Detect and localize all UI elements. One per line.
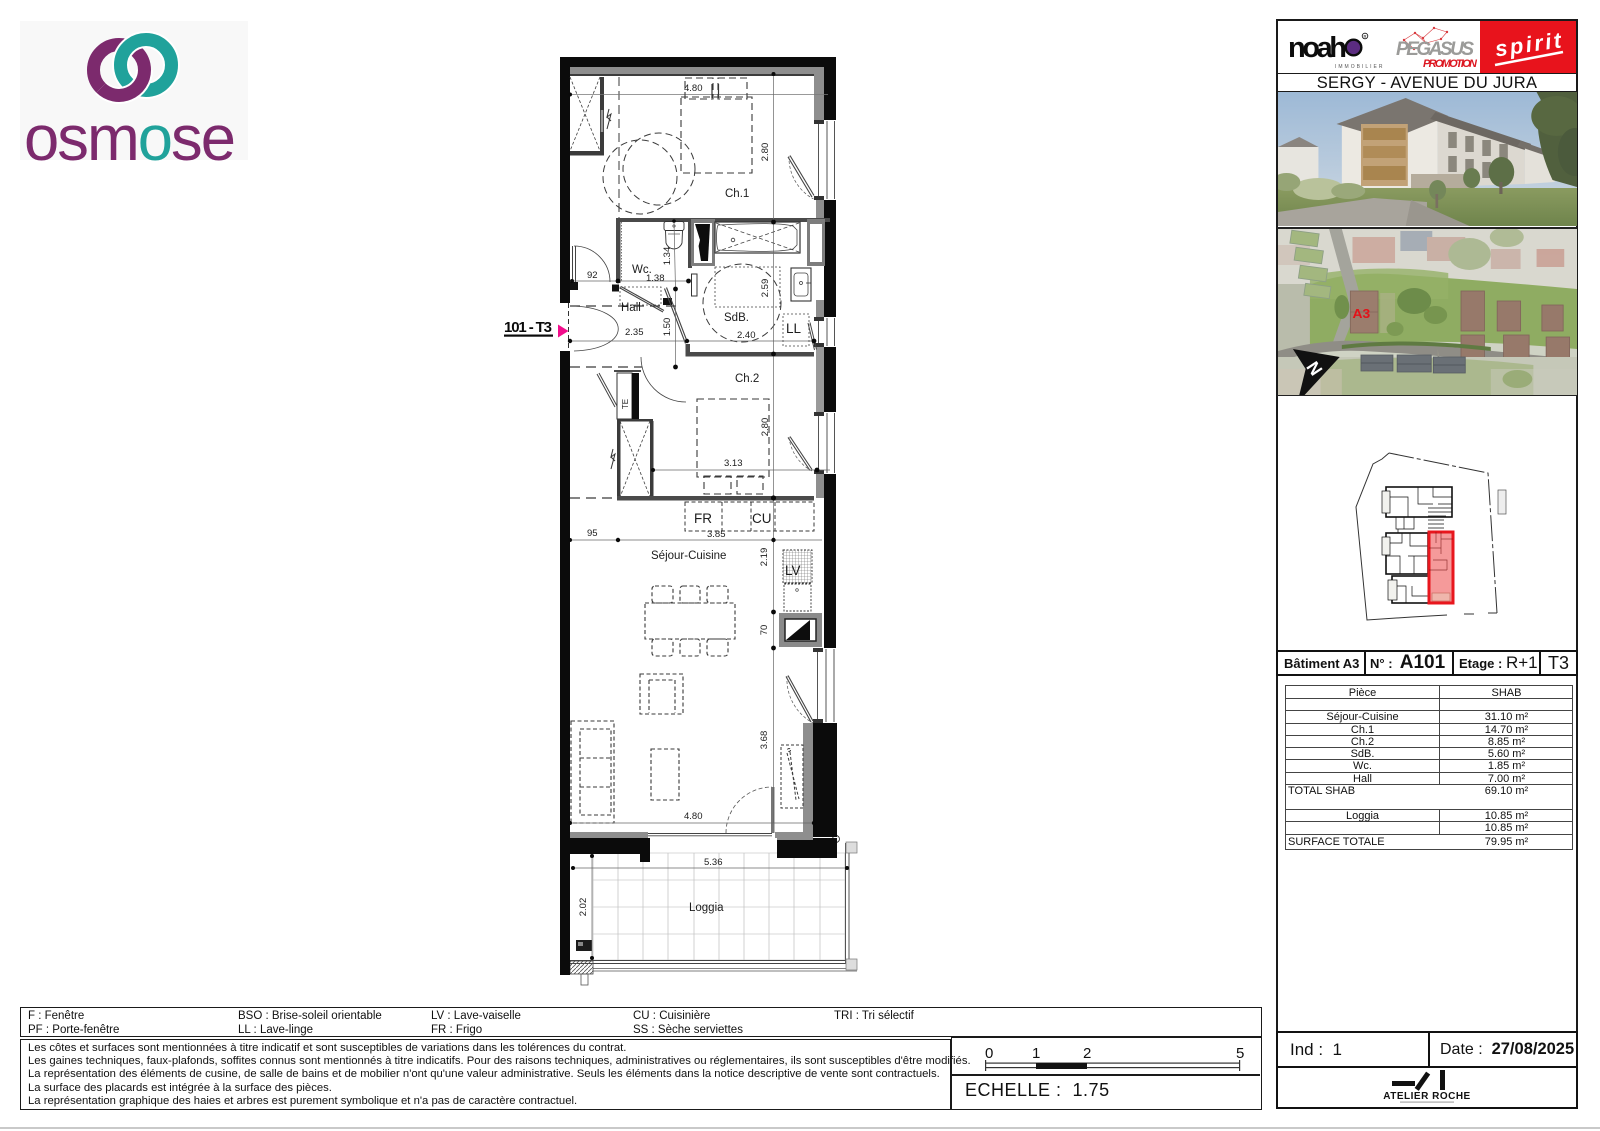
svg-text:noah: noah [1288, 32, 1346, 64]
svg-text:LV: LV [785, 563, 801, 578]
svg-text:Ch.2: Ch.2 [735, 373, 759, 385]
svg-text:5.36: 5.36 [704, 857, 723, 868]
svg-text:2.02: 2.02 [578, 898, 589, 917]
svg-text:3.13: 3.13 [724, 458, 743, 469]
svg-text:92: 92 [587, 270, 598, 281]
svg-text:Loggia: Loggia [689, 902, 724, 914]
svg-text:osmose: osmose [24, 102, 234, 172]
svg-text:PEGASUS: PEGASUS [1396, 39, 1474, 60]
svg-text:Wc.: Wc. [632, 264, 652, 276]
svg-text:FR: FR [694, 511, 712, 526]
svg-text:95: 95 [587, 528, 598, 539]
svg-text:Ch.1: Ch.1 [725, 188, 749, 200]
svg-text:2.80: 2.80 [760, 418, 771, 437]
svg-text:3.68: 3.68 [759, 731, 770, 750]
svg-text:PROMOTION: PROMOTION [1423, 58, 1478, 70]
svg-text:Séjour-Cuisine: Séjour-Cuisine [651, 550, 726, 562]
svg-text:4.80: 4.80 [684, 811, 703, 822]
svg-text:101 - T3: 101 - T3 [504, 319, 552, 336]
svg-text:Hall: Hall [621, 302, 641, 314]
svg-text:spirit: spirit [1494, 27, 1566, 61]
svg-text:IMMOBILIER: IMMOBILIER [1335, 64, 1384, 70]
svg-text:2.40: 2.40 [737, 330, 756, 341]
svg-text:1.50: 1.50 [662, 318, 673, 337]
svg-text:2: 2 [1083, 1045, 1091, 1062]
svg-text:2.35: 2.35 [625, 327, 644, 338]
svg-text:TE: TE [621, 399, 630, 409]
svg-text:70: 70 [759, 625, 770, 636]
svg-text:A3: A3 [1352, 306, 1370, 321]
svg-text:CU: CU [752, 511, 772, 526]
svg-text:3.85: 3.85 [707, 529, 726, 540]
svg-text:1.34: 1.34 [662, 247, 673, 266]
svg-text:R: R [1363, 34, 1366, 39]
svg-text:5: 5 [1236, 1045, 1244, 1062]
svg-text:2.19: 2.19 [759, 548, 770, 567]
svg-text:LL: LL [786, 321, 802, 336]
svg-text:2.59: 2.59 [760, 279, 771, 298]
svg-text:2.80: 2.80 [760, 143, 771, 162]
svg-text:1: 1 [1032, 1045, 1040, 1062]
svg-text:4.80: 4.80 [684, 83, 703, 94]
svg-text:0: 0 [985, 1045, 993, 1062]
svg-text:ATELIER ROCHE: ATELIER ROCHE [1383, 1091, 1470, 1102]
svg-text:SdB.: SdB. [724, 312, 749, 324]
